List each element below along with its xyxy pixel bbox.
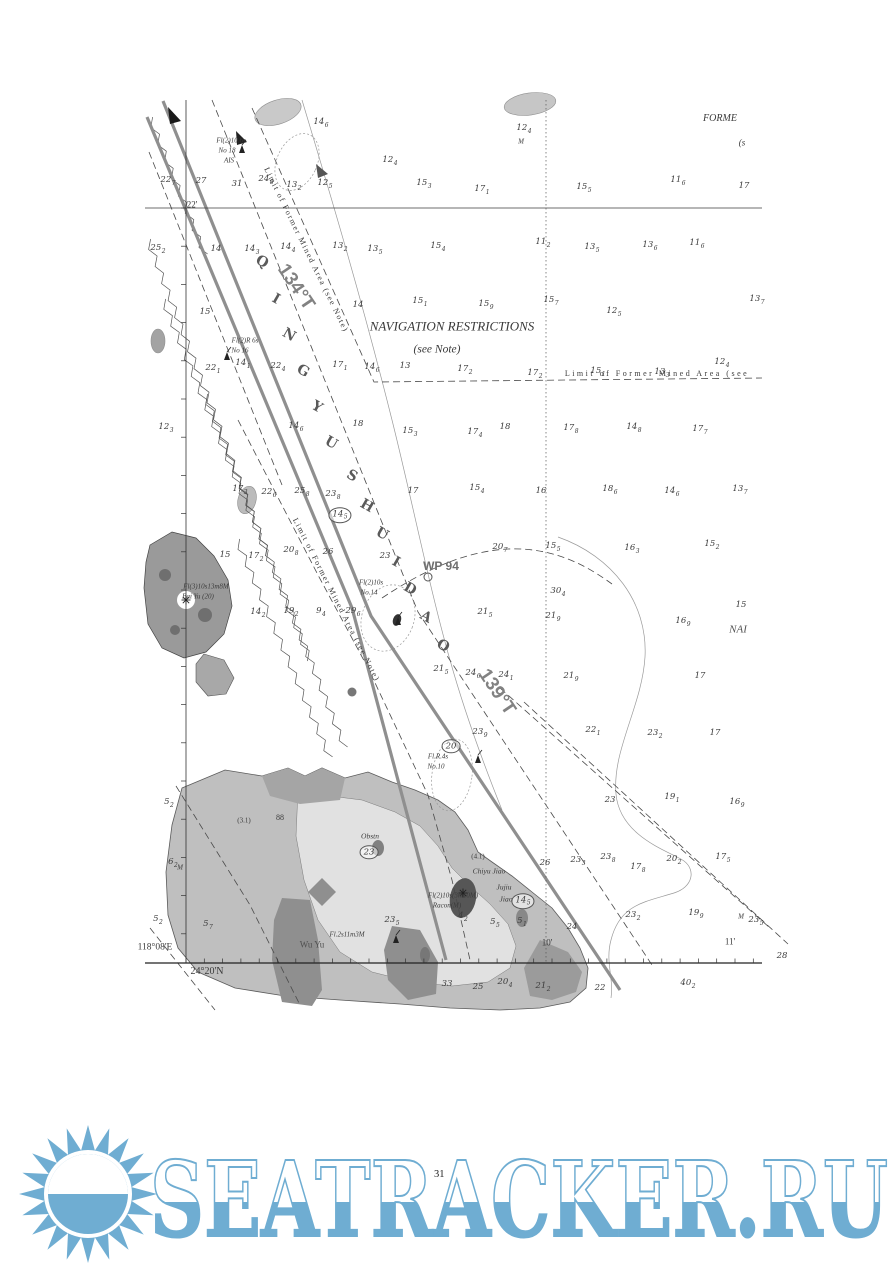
sun-logo-icon — [19, 1125, 157, 1263]
buoy-icon — [475, 750, 482, 763]
zigzag-lines — [149, 117, 348, 757]
page-number: 31 — [434, 1169, 445, 1180]
land-bai-yu — [144, 532, 234, 696]
route-arrow-icon — [236, 131, 247, 145]
light-star-icon — [459, 889, 468, 898]
watermark-text: SEATRACKER.RU — [150, 1138, 888, 1261]
light-star-icon — [182, 596, 191, 605]
nautical-chart — [0, 0, 893, 1263]
seatracker-watermark: SEATRACKER.RU — [0, 1120, 893, 1263]
nautical-chart-page: NAVIGATION RESTRICTIONS(see Note)Limit o… — [0, 0, 893, 1263]
shoal-patches — [151, 89, 557, 891]
route-arrow-icon — [168, 107, 181, 124]
land-wu-yu — [166, 768, 588, 1010]
